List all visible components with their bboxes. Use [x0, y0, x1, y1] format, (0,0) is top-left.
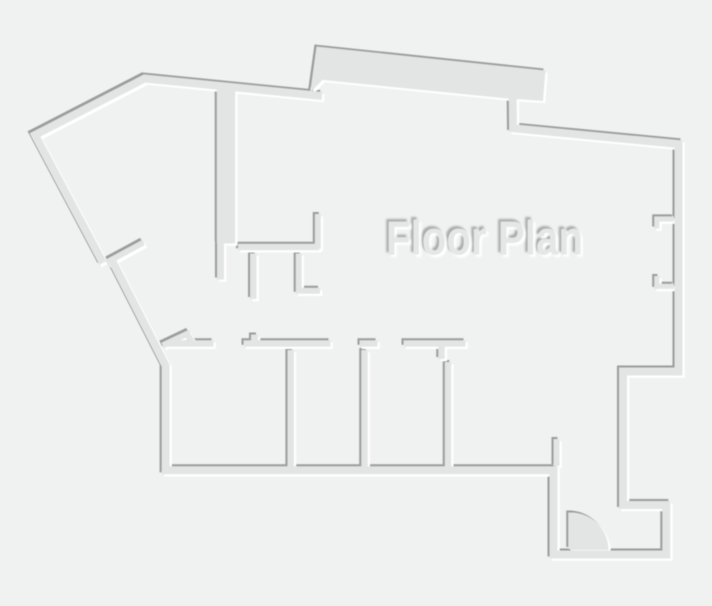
svg-text:Floor Plan: Floor Plan	[386, 213, 583, 266]
